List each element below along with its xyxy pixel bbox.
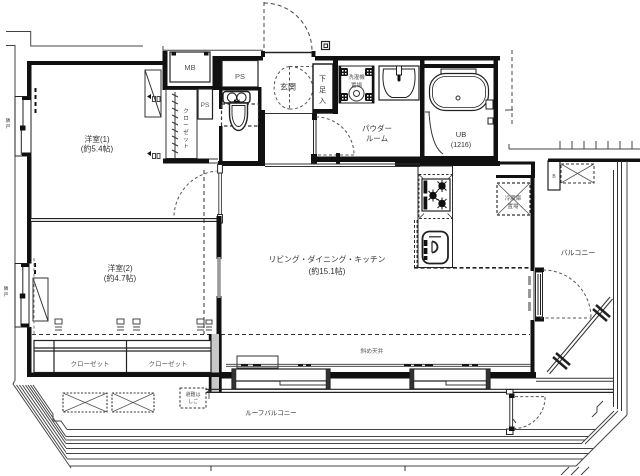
svg-text:ク: ク <box>183 108 189 115</box>
svg-text:(1216): (1216) <box>451 142 471 149</box>
svg-text:(約5.4帖): (約5.4帖) <box>81 144 114 154</box>
svg-text:ルーフバルコニー: ルーフバルコニー <box>245 409 296 417</box>
svg-text:洋室(2): 洋室(2) <box>107 263 133 273</box>
svg-text:ゼ: ゼ <box>183 128 189 136</box>
svg-text:洗濯機: 洗濯機 <box>348 73 365 81</box>
svg-text:足: 足 <box>319 86 326 94</box>
svg-text:PS: PS <box>235 72 245 81</box>
svg-text:しご: しご <box>188 398 198 405</box>
svg-text:隣: 隣 <box>6 117 11 124</box>
svg-text:斜め天井: 斜め天井 <box>360 347 383 355</box>
svg-text:UB: UB <box>456 130 466 139</box>
svg-text:隣: 隣 <box>4 285 9 292</box>
svg-text:MB: MB <box>184 63 195 72</box>
svg-text:ッ: ッ <box>183 137 189 143</box>
svg-text:玄関: 玄関 <box>280 82 296 92</box>
svg-text:パウダー: パウダー <box>362 123 392 133</box>
svg-text:バルコニー: バルコニー <box>561 249 596 257</box>
svg-text:(約15.1帖): (約15.1帖) <box>309 266 346 276</box>
svg-text:クローゼット: クローゼット <box>71 359 110 368</box>
svg-text:避難は: 避難は <box>185 391 200 398</box>
svg-text:下: 下 <box>319 75 326 83</box>
svg-text:(約4.7帖): (約4.7帖) <box>104 273 137 283</box>
svg-text:ー: ー <box>183 123 189 129</box>
svg-text:PS: PS <box>201 102 210 109</box>
svg-text:リビング・ダイニング・キッチン: リビング・ダイニング・キッチン <box>269 254 386 264</box>
svg-text:冷蔵庫: 冷蔵庫 <box>505 194 522 202</box>
svg-text:置場: 置場 <box>507 202 519 210</box>
svg-text:洋室(1): 洋室(1) <box>84 134 110 144</box>
svg-text:ロ: ロ <box>183 116 189 122</box>
svg-text:ルーム: ルーム <box>366 134 388 143</box>
svg-text:クローゼット: クローゼット <box>149 359 188 368</box>
svg-text:ト: ト <box>183 144 189 150</box>
svg-text:入: 入 <box>319 97 326 105</box>
